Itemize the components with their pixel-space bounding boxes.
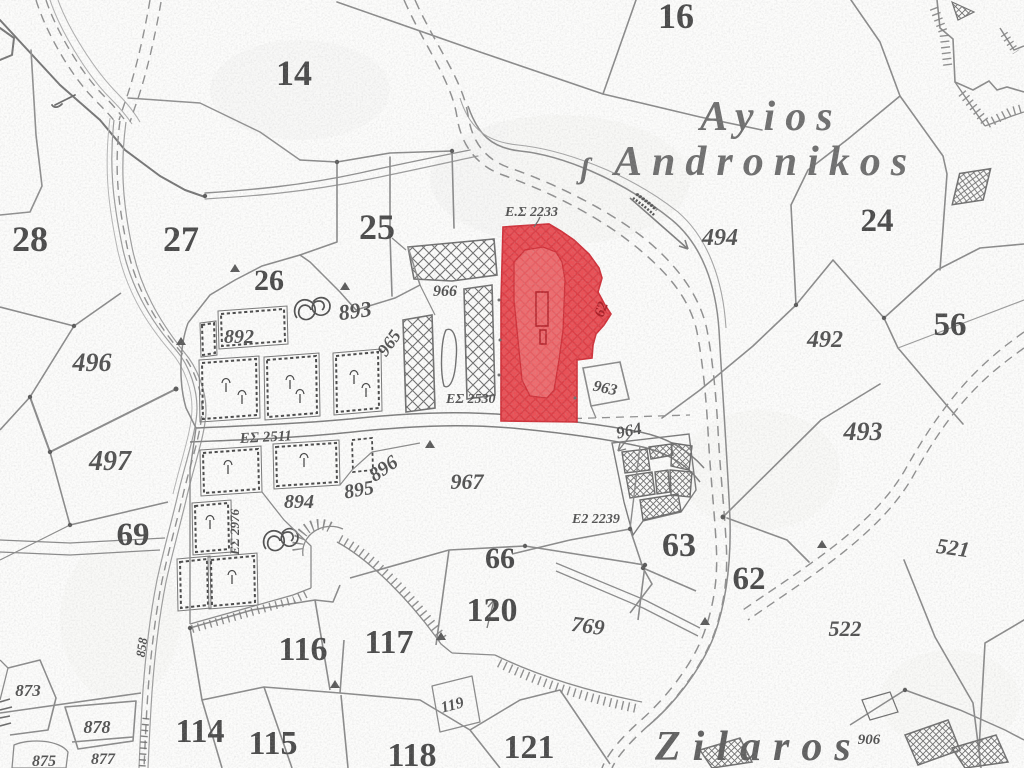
- svg-text:Ayios: Ayios: [697, 94, 843, 140]
- svg-text:16: 16: [658, 0, 694, 36]
- svg-text:893: 893: [337, 296, 373, 325]
- svg-text:963: 963: [592, 378, 619, 400]
- svg-text:894: 894: [284, 491, 314, 513]
- svg-text:967: 967: [451, 469, 485, 494]
- svg-text:522: 522: [829, 616, 862, 641]
- svg-text:493: 493: [843, 417, 883, 446]
- svg-text:26: 26: [254, 264, 284, 297]
- svg-text:117: 117: [364, 624, 413, 661]
- svg-text:56: 56: [934, 307, 967, 343]
- svg-text:28: 28: [12, 219, 48, 259]
- svg-text:492: 492: [806, 327, 843, 353]
- svg-text:116: 116: [278, 631, 327, 668]
- svg-text:115: 115: [248, 725, 297, 762]
- svg-text:119: 119: [439, 694, 466, 716]
- svg-text:118: 118: [387, 737, 436, 768]
- svg-text:69: 69: [117, 517, 150, 553]
- svg-text:965: 965: [373, 326, 405, 360]
- svg-text:ΕΣ 2530: ΕΣ 2530: [445, 392, 496, 407]
- svg-text:120: 120: [467, 592, 518, 629]
- svg-text:66: 66: [485, 542, 515, 575]
- svg-text:Zilaros: Zilaros: [654, 724, 863, 768]
- svg-text:Ε2 2239: Ε2 2239: [571, 512, 620, 527]
- svg-text:63: 63: [662, 527, 696, 564]
- svg-text:ʃ: ʃ: [576, 152, 593, 185]
- svg-text:497: 497: [88, 446, 132, 477]
- svg-text:62: 62: [733, 561, 766, 597]
- svg-text:14: 14: [276, 53, 312, 93]
- svg-text:892: 892: [224, 326, 254, 348]
- svg-text:ΕΣ 2976: ΕΣ 2976: [227, 509, 242, 556]
- svg-text:521: 521: [935, 533, 971, 562]
- svg-text:27: 27: [163, 219, 199, 259]
- svg-text:114: 114: [175, 713, 224, 750]
- svg-text:25: 25: [359, 207, 395, 247]
- svg-text:895: 895: [342, 477, 375, 504]
- svg-text:769: 769: [570, 611, 606, 640]
- svg-text:875: 875: [32, 753, 56, 768]
- svg-text:878: 878: [84, 717, 111, 737]
- svg-text:Andronikos: Andronikos: [611, 139, 917, 185]
- svg-text:858: 858: [133, 636, 151, 658]
- svg-text:966: 966: [433, 283, 457, 300]
- svg-text:877: 877: [91, 751, 116, 768]
- svg-text:Ε.Σ 2233: Ε.Σ 2233: [504, 205, 558, 220]
- svg-text:496: 496: [72, 348, 112, 377]
- svg-text:964: 964: [614, 419, 643, 443]
- svg-text:121: 121: [504, 729, 555, 766]
- svg-text:873: 873: [15, 681, 41, 700]
- svg-text:ΕΣ 2511: ΕΣ 2511: [238, 428, 292, 447]
- svg-text:24: 24: [861, 203, 894, 239]
- svg-text:494: 494: [701, 225, 738, 251]
